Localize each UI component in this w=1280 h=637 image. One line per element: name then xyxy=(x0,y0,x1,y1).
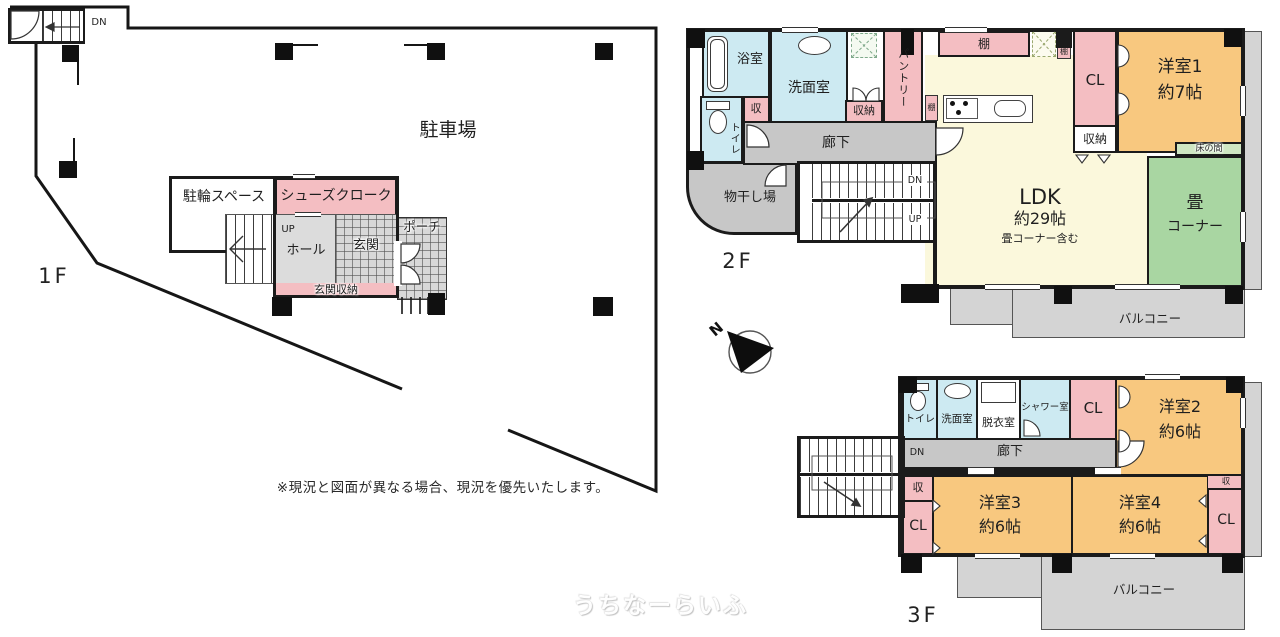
compass-north-label: N xyxy=(706,318,727,340)
pillar xyxy=(901,554,922,573)
f2-toko-label: 床の間 xyxy=(1180,144,1238,155)
f1-parking-label: 駐車場 xyxy=(402,119,494,143)
f3-corridor-label: 廊下 xyxy=(985,444,1035,459)
pillar xyxy=(1054,286,1072,304)
f2-toilet-label: トイレ xyxy=(726,115,740,161)
pillar xyxy=(1222,554,1243,573)
window-mark xyxy=(1240,398,1246,428)
f1-genkan-sto-label: 玄関収納 xyxy=(277,283,395,296)
f1-stairbox-treads xyxy=(42,11,83,41)
f2-tatami-label2: コーナー xyxy=(1157,219,1233,235)
f3-room2-label1: 洋室2 xyxy=(1140,398,1220,417)
f1-porch-label: ポーチ xyxy=(398,219,446,234)
window-mark xyxy=(968,467,994,475)
pillar xyxy=(593,297,613,316)
window-mark xyxy=(1110,553,1155,559)
f3-balcony-left xyxy=(957,555,1043,598)
f3-dressing-label: 脱衣室 xyxy=(976,416,1021,429)
f3-top-wall xyxy=(898,376,1245,380)
watermark: うちなーらいふ xyxy=(573,586,748,620)
kitchen-sink-icon xyxy=(994,100,1026,117)
f2-shelf-mini-left-label: 棚 xyxy=(926,101,937,115)
f2-room1-label2: 約7帖 xyxy=(1140,84,1220,104)
f3-floor-label: 3F xyxy=(901,603,945,627)
f2-ldk-label2: 約29帖 xyxy=(1000,210,1080,229)
f3-room4 xyxy=(1071,475,1209,555)
f3-balcony-label: バルコニー xyxy=(1112,583,1176,597)
f3-room3 xyxy=(932,475,1073,555)
f3-dn-label: DN xyxy=(905,447,929,458)
f2-room1-label1: 洋室1 xyxy=(1140,58,1220,78)
window-mark xyxy=(975,553,1020,559)
pillar xyxy=(687,151,704,170)
fridge-dashed xyxy=(1032,31,1056,57)
f2-storage-mid-label: 収納 xyxy=(845,103,883,118)
f1-floor-label: 1F xyxy=(34,264,74,288)
f2-ldk-left-wall xyxy=(933,161,937,287)
compass-icon: N xyxy=(706,318,774,373)
f3-corridor-bottom-wall xyxy=(898,467,1119,475)
window-mark xyxy=(985,284,1040,290)
f2-wash-label: 洗面室 xyxy=(778,80,840,96)
f2-pantry-label: パントリー xyxy=(890,35,916,120)
bathtub-inner xyxy=(710,39,725,89)
f1-bike-label: 駐輪スペース xyxy=(174,188,274,206)
pillar xyxy=(428,293,445,315)
sink-icon xyxy=(944,383,971,399)
f2-tatami-label1: 畳 xyxy=(1160,194,1230,214)
stove-burner xyxy=(950,101,955,106)
window-mark xyxy=(1240,212,1246,242)
f2-ldk-label1: LDK xyxy=(1000,186,1080,208)
f3-room3-label1: 洋室3 xyxy=(960,494,1040,513)
f3-stairs-divider xyxy=(800,473,903,476)
f3-shower-label: シャワー室 xyxy=(1019,402,1071,414)
f3-cl-top-label: CL xyxy=(1077,400,1109,418)
pillar xyxy=(59,161,77,178)
pillar-ticks xyxy=(74,45,427,161)
pillar xyxy=(901,284,939,303)
pillar xyxy=(1052,554,1072,573)
f2-storage-right-label: 収納 xyxy=(1076,131,1114,147)
f1-up-label: UP xyxy=(277,224,299,236)
pillar xyxy=(687,29,705,48)
washer-pan-dashed xyxy=(851,33,877,58)
f2-corridor-label: 廊下 xyxy=(808,135,864,152)
washer-pan-icon xyxy=(981,382,1016,403)
window-mark xyxy=(293,174,315,179)
window-mark xyxy=(1240,86,1246,116)
pillar xyxy=(595,43,613,60)
f3-stairs-lower xyxy=(800,477,902,515)
f3-cl-right-label: CL xyxy=(1209,512,1243,528)
pillar xyxy=(427,43,445,60)
pillar xyxy=(1226,377,1243,393)
pillar xyxy=(1224,29,1242,47)
f3-sto-left-label: 収 xyxy=(904,480,932,495)
window-mark xyxy=(945,27,987,33)
window-mark xyxy=(782,27,818,33)
f2-balcony-label: バルコニー xyxy=(1118,312,1182,326)
f1-hall-label: ホール xyxy=(280,243,332,259)
f2-ldk-bottom-wall xyxy=(933,285,1245,289)
toilet-icon xyxy=(706,101,730,110)
f3-sto-right-label: 収 xyxy=(1209,477,1243,488)
f2-shelf-label: 棚 xyxy=(940,36,1028,52)
f2-balcony-side-strip xyxy=(1243,31,1262,290)
window-mark xyxy=(1145,374,1180,380)
f2-floor-label: 2F xyxy=(716,249,760,273)
pillar xyxy=(899,377,917,393)
f3-room3-label2: 約6帖 xyxy=(960,518,1040,536)
window-mark xyxy=(1115,284,1180,290)
f3-room2-label2: 約6帖 xyxy=(1140,423,1220,441)
f2-kitchen-wall-chunk xyxy=(1056,29,1072,48)
f1-bike-bottom-wall xyxy=(169,250,226,253)
disclaimer-note: ※現況と図面が異なる場合、現況を優先いたします。 xyxy=(281,480,605,497)
f2-up-label: UP xyxy=(903,214,927,225)
f2-right-wall xyxy=(1241,28,1245,290)
f2-dn-label: DN xyxy=(903,175,927,186)
window-mark xyxy=(1095,467,1121,475)
f2-cl-label: CL xyxy=(1078,72,1112,90)
toilet-bowl-icon xyxy=(910,391,926,411)
f1-genkan-label: 玄関 xyxy=(338,238,394,254)
f3-stairs-upper xyxy=(800,439,902,472)
stove-burner xyxy=(963,101,968,106)
f2-left-wall xyxy=(686,28,690,163)
f2-drying-label: 物干し場 xyxy=(712,190,788,205)
f1-stairs-up xyxy=(225,214,275,284)
pillar xyxy=(62,45,79,62)
pillar xyxy=(1225,286,1243,304)
stove-burner xyxy=(956,110,961,115)
toilet-bowl-icon xyxy=(709,110,727,134)
f3-room4-label1: 洋室4 xyxy=(1100,494,1180,513)
f3-wash-label: 洗面室 xyxy=(936,414,978,426)
f2-sto-label: 収 xyxy=(745,101,767,117)
f3-cl-left-label: CL xyxy=(904,518,932,535)
sink-icon xyxy=(798,36,831,55)
f2-bath-label: 浴室 xyxy=(730,52,770,68)
f2-ldk-label3: 畳コーナー含む xyxy=(995,232,1085,245)
f1-shoes-label: シューズクローク xyxy=(277,188,395,204)
pillar xyxy=(272,297,292,316)
window-mark xyxy=(295,212,321,217)
f3-room4-label2: 約6帖 xyxy=(1100,518,1180,536)
pillar xyxy=(275,43,293,60)
f2-stairs-divider xyxy=(812,199,937,202)
f2-shelf-mini-right-label: 棚 xyxy=(1058,47,1070,58)
f1-dn-label: DN xyxy=(86,17,112,29)
floorplan-canvas: DN 駐輪スペース シューズクローク UP ホール 玄関 玄関収納 ポーチ 駐車… xyxy=(0,0,1280,637)
f3-toilet-label: トイレ xyxy=(902,414,938,426)
f2-balcony-left xyxy=(950,286,1014,325)
